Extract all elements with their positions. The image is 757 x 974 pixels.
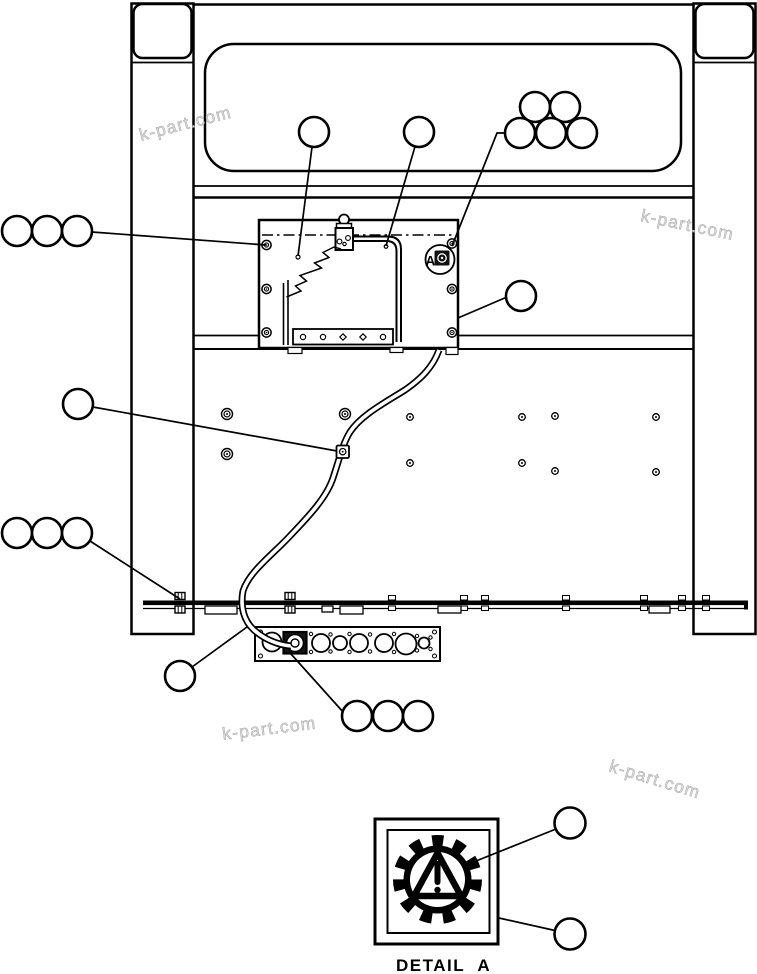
frame-left-leg-cap (134, 4, 192, 58)
callout-balloon (506, 281, 536, 311)
callout-balloon (62, 216, 92, 246)
gear-warning-triangle-icon (401, 843, 475, 917)
leader-line (458, 297, 507, 318)
callout-balloon (555, 919, 586, 950)
rail-tabs (205, 606, 670, 614)
rail-bar (143, 601, 748, 606)
hose-p-clamp (337, 446, 350, 459)
callout-balloon (32, 518, 62, 548)
callout-balloon (567, 118, 597, 148)
callout-balloon (404, 117, 434, 147)
leader-line (192, 627, 247, 667)
frame-left-leg (132, 4, 194, 635)
callout-balloon (32, 216, 62, 246)
callout-balloon (536, 118, 566, 148)
detail-a-inset: DETAIL A (375, 819, 498, 974)
detail-a-label: DETAIL A (396, 956, 491, 974)
callout-balloon (165, 661, 195, 691)
leader-line (499, 918, 555, 931)
control-panel: A (259, 215, 458, 355)
frame-top-opening (205, 44, 681, 171)
callout-balloon (505, 118, 535, 148)
leader-line (452, 133, 505, 246)
panel-bottom-bar (293, 329, 393, 345)
watermark-text: k-part.com (607, 756, 703, 803)
callout-balloon (2, 216, 32, 246)
leader-line (93, 407, 337, 451)
frame-right-leg (694, 4, 756, 635)
callout-balloon (299, 117, 329, 147)
hose-end-fitting (291, 639, 299, 647)
parts-diagram-page: A (0, 0, 757, 974)
diagram-canvas: A (0, 0, 757, 974)
leader-line (476, 829, 556, 861)
detail-a-marker: A (426, 245, 455, 274)
callout-balloon (342, 701, 372, 731)
watermarks: k-part.com k-part.com k-part.com k-part.… (137, 102, 736, 803)
callout-balloon (373, 701, 403, 731)
leader-line (291, 654, 344, 713)
detail-a-marker-label: A (426, 254, 436, 269)
callout-balloon (62, 518, 92, 548)
callout-balloon (2, 518, 32, 548)
bottom-rail (143, 593, 748, 615)
small-screws (407, 413, 660, 476)
callout-balloon (63, 389, 93, 419)
frame-right-leg-cap (696, 4, 754, 58)
watermark-text: k-part.com (221, 713, 317, 744)
callout-balloon (555, 808, 586, 839)
callout-balloon (403, 701, 433, 731)
